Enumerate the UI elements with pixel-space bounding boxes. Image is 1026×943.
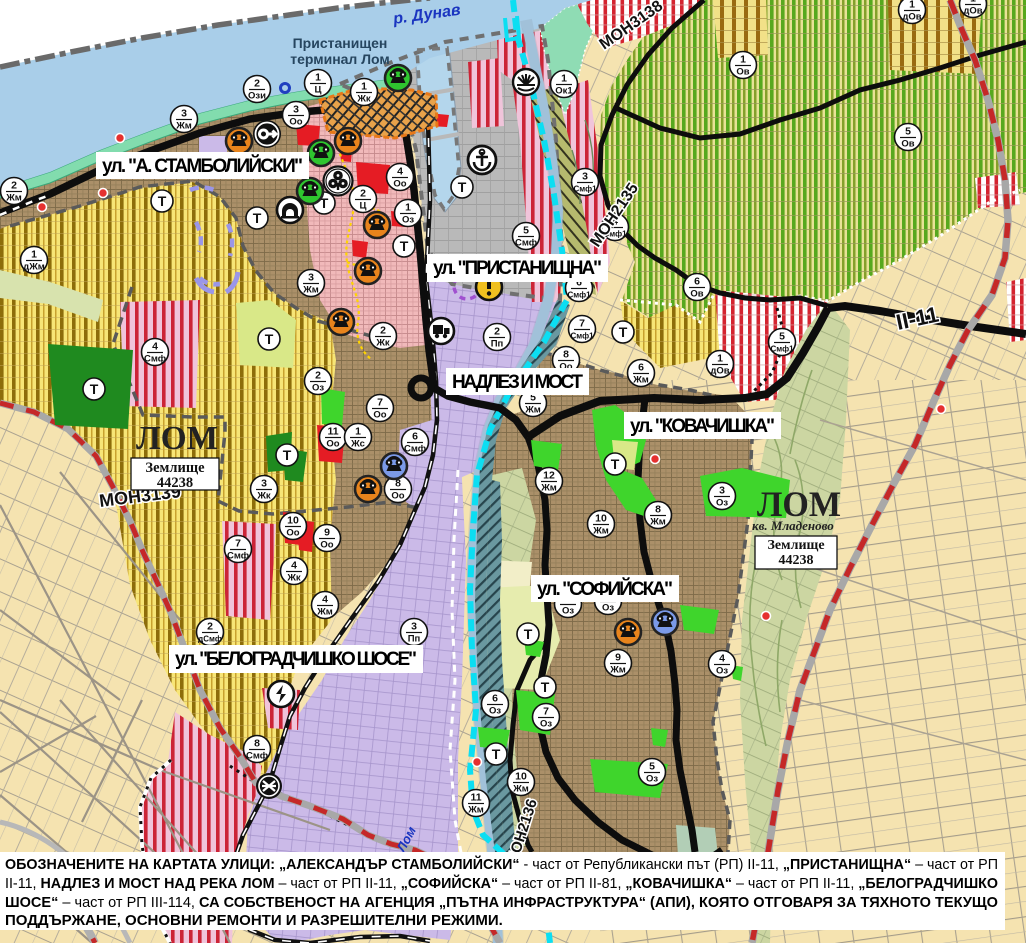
svg-text:ул. "БЕЛОГРАДЧИШКО ШОСЕ": ул. "БЕЛОГРАДЧИШКО ШОСЕ" (175, 649, 417, 670)
svg-text:Смф1: Смф1 (573, 185, 597, 194)
svg-text:8: 8 (563, 349, 569, 361)
svg-text:терминал Лом: терминал Лом (290, 51, 390, 67)
svg-text:Смф: Смф (144, 354, 166, 365)
svg-text:Ц: Ц (315, 85, 322, 96)
svg-text:1: 1 (361, 81, 367, 93)
svg-text:Оз: Оз (716, 666, 728, 677)
svg-text:Жм: Жм (5, 193, 22, 204)
svg-text:4: 4 (152, 341, 158, 353)
svg-text:7: 7 (579, 318, 585, 330)
svg-text:2: 2 (315, 370, 321, 382)
svg-text:Т: Т (400, 238, 409, 254)
svg-text:дОв: дОв (963, 6, 982, 17)
svg-text:Оз: Оз (562, 606, 574, 617)
svg-text:Т: Т (253, 210, 262, 226)
svg-text:Ов: Ов (901, 139, 914, 150)
svg-text:ул. "А. СТАМБОЛИЙСКИ": ул. "А. СТАМБОЛИЙСКИ" (102, 155, 303, 177)
svg-text:3: 3 (293, 104, 299, 116)
svg-text:12: 12 (543, 470, 555, 482)
svg-text:Оо: Оо (289, 117, 302, 128)
svg-text:Оз: Оз (489, 706, 501, 717)
svg-text:Оз: Оз (646, 774, 658, 785)
svg-text:Оо: Оо (393, 179, 406, 190)
svg-text:ул. "СОФИЙСКА": ул. "СОФИЙСКА" (537, 578, 673, 600)
svg-text:Оо: Оо (391, 491, 404, 502)
svg-text:Ов: Ов (690, 289, 703, 300)
svg-text:2: 2 (207, 621, 213, 633)
svg-text:1: 1 (740, 54, 746, 66)
svg-text:Оз: Оз (312, 383, 324, 394)
svg-text:Т: Т (619, 324, 628, 340)
svg-text:3: 3 (308, 272, 314, 284)
svg-text:6: 6 (492, 693, 498, 705)
svg-text:ЛОМ: ЛОМ (136, 420, 218, 457)
svg-text:5: 5 (779, 331, 785, 343)
svg-text:7: 7 (543, 706, 549, 718)
svg-text:Жм: Жм (632, 375, 649, 386)
svg-text:Смф1: Смф1 (570, 332, 594, 341)
svg-text:11: 11 (470, 792, 481, 804)
svg-text:Т: Т (458, 179, 467, 195)
svg-text:2: 2 (380, 325, 386, 337)
svg-text:11: 11 (327, 426, 338, 438)
svg-text:1: 1 (315, 72, 321, 84)
svg-text:10: 10 (515, 771, 527, 783)
svg-text:Жм: Жм (302, 285, 319, 296)
svg-text:2: 2 (360, 188, 366, 200)
svg-text:3: 3 (181, 108, 187, 120)
svg-text:дОв: дОв (902, 12, 921, 23)
svg-text:Жм: Жм (609, 665, 626, 676)
svg-text:Оо: Оо (326, 439, 339, 450)
svg-text:ШОСЕ“ – част от РП III-114, СА: ШОСЕ“ – част от РП III-114, СА СОБСТВЕНО… (5, 894, 998, 911)
svg-text:Т: Т (283, 447, 292, 463)
svg-text:Оо: Оо (373, 410, 386, 421)
svg-text:4: 4 (322, 594, 328, 606)
svg-text:Жк: Жк (356, 94, 371, 105)
svg-text:4: 4 (291, 560, 297, 572)
svg-text:1: 1 (970, 0, 976, 5)
svg-text:дСмф: дСмф (198, 635, 222, 644)
svg-text:ул. "ПРИСТАНИЩНА": ул. "ПРИСТАНИЩНА" (433, 258, 602, 279)
svg-text:Жм: Жм (649, 517, 666, 528)
svg-text:3: 3 (411, 621, 417, 633)
svg-text:6: 6 (412, 431, 418, 443)
svg-text:2: 2 (254, 78, 260, 90)
svg-text:5: 5 (905, 126, 911, 138)
svg-text:Смф1: Смф1 (770, 345, 794, 354)
svg-text:1: 1 (31, 249, 37, 261)
svg-text:44238: 44238 (779, 553, 814, 568)
svg-text:Жм: Жм (467, 805, 484, 816)
svg-text:8: 8 (254, 738, 260, 750)
svg-text:3: 3 (719, 485, 725, 497)
svg-text:Т: Т (90, 381, 99, 397)
svg-text:2: 2 (494, 326, 500, 338)
svg-text:1: 1 (355, 426, 361, 438)
svg-text:НАДЛЕЗ И МОСТ: НАДЛЕЗ И МОСТ (452, 372, 583, 393)
svg-text:Жм: Жм (175, 121, 192, 132)
svg-text:Жм: Жм (524, 405, 541, 416)
svg-text:Оз: Оз (716, 498, 728, 509)
svg-text:дОв: дОв (710, 366, 729, 377)
svg-text:Жк: Жк (375, 338, 390, 349)
svg-text:Пп: Пп (408, 634, 421, 645)
svg-text:ОБОЗНАЧЕНИТЕ НА КАРТАТА УЛИЦИ:: ОБОЗНАЧЕНИТЕ НА КАРТАТА УЛИЦИ: „АЛЕКСАНД… (5, 855, 998, 873)
svg-text:кв. Младеново: кв. Младеново (752, 518, 834, 533)
svg-text:Смф: Смф (515, 238, 537, 249)
svg-text:Ов: Ов (736, 67, 749, 78)
svg-text:3: 3 (261, 478, 267, 490)
svg-text:Т: Т (524, 626, 533, 642)
svg-text:Жм: Жм (592, 526, 609, 537)
svg-text:Оо: Оо (286, 528, 299, 539)
svg-text:Жм: Жм (540, 483, 557, 494)
svg-text:Пристанищен: Пристанищен (293, 35, 388, 51)
svg-text:4: 4 (397, 166, 403, 178)
svg-text:5: 5 (523, 225, 529, 237)
svg-text:6: 6 (638, 362, 644, 374)
svg-text:Оз: Оз (402, 215, 414, 226)
svg-text:Жк: Жк (286, 573, 301, 584)
svg-text:Землище: Землище (767, 538, 824, 553)
svg-text:Жм: Жм (512, 784, 529, 795)
svg-text:1: 1 (717, 353, 723, 365)
svg-text:II-11, НАДЛЕЗ И МОСТ НАД РЕКА: II-11, НАДЛЕЗ И МОСТ НАД РЕКА ЛОМ – част… (5, 874, 998, 892)
svg-text:2: 2 (11, 180, 17, 192)
svg-text:1: 1 (405, 202, 411, 214)
svg-text:Т: Т (492, 746, 501, 762)
svg-text:Ози: Ози (248, 91, 266, 102)
svg-text:7: 7 (235, 538, 241, 550)
svg-text:Т: Т (158, 193, 167, 209)
svg-text:5: 5 (649, 761, 655, 773)
svg-text:Т: Т (611, 456, 620, 472)
svg-text:дЖм: дЖм (23, 262, 45, 273)
svg-text:1: 1 (561, 73, 567, 85)
svg-text:Оо: Оо (320, 540, 333, 551)
svg-text:Жк: Жк (256, 491, 271, 502)
svg-text:Оз: Оз (602, 603, 614, 614)
svg-text:Т: Т (541, 679, 550, 695)
svg-text:10: 10 (287, 515, 299, 527)
svg-text:3: 3 (582, 171, 588, 183)
svg-text:Ц: Ц (360, 201, 367, 212)
svg-text:Смф: Смф (227, 551, 249, 562)
svg-text:10: 10 (595, 513, 607, 525)
svg-text:9: 9 (615, 652, 621, 664)
svg-text:7: 7 (377, 397, 383, 409)
svg-text:Ок1: Ок1 (555, 86, 573, 97)
svg-text:Смф: Смф (246, 751, 268, 762)
svg-text:ПОДДЪРЖАНЕ, ОСНОВНИ РЕМОНТИ И: ПОДДЪРЖАНЕ, ОСНОВНИ РЕМОНТИ И РАЗРЕШИТЕЛ… (5, 912, 503, 929)
svg-text:Оз: Оз (540, 719, 552, 730)
svg-text:Жс: Жс (350, 439, 365, 450)
svg-text:Землище: Землище (145, 460, 205, 476)
svg-text:8: 8 (655, 504, 661, 516)
svg-text:Смф: Смф (404, 444, 426, 455)
svg-text:Жм: Жм (316, 607, 333, 618)
svg-text:4: 4 (719, 653, 725, 665)
svg-text:Т: Т (265, 331, 274, 347)
svg-text:1: 1 (909, 0, 915, 11)
svg-text:44238: 44238 (157, 475, 193, 491)
svg-text:9: 9 (324, 527, 330, 539)
svg-text:Смф1: Смф1 (567, 291, 591, 300)
svg-text:Пп: Пп (491, 339, 504, 350)
svg-text:6: 6 (694, 276, 700, 288)
svg-text:ул. "КОВАЧИШКА": ул. "КОВАЧИШКА" (630, 416, 775, 437)
